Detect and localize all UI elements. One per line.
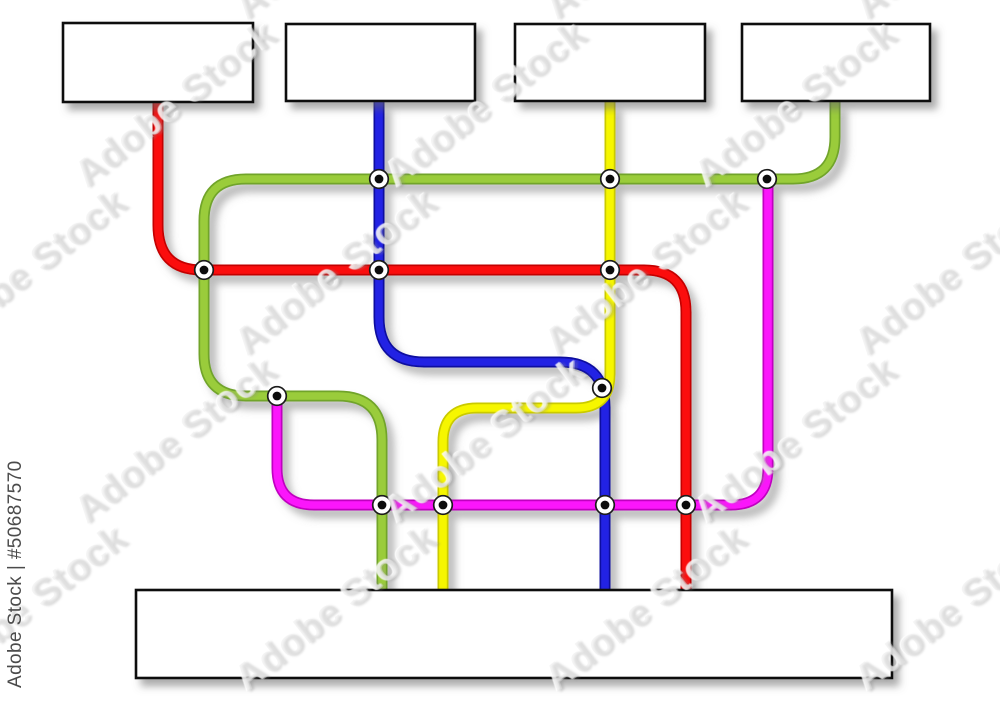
top-box-1 [63, 23, 253, 102]
bottom-box [136, 590, 892, 678]
station-marker [370, 261, 389, 280]
station-marker [373, 496, 392, 515]
top-box-3 [515, 24, 705, 101]
station-marker [434, 496, 453, 515]
station-marker [677, 496, 696, 515]
station-marker [601, 170, 620, 189]
watermark-attribution: Adobe Stock | #50687570 [5, 404, 27, 688]
boxes-layer [63, 23, 930, 678]
top-box-4 [742, 24, 930, 101]
station-marker [195, 261, 214, 280]
lines-layer [158, 102, 835, 590]
top-box-2 [286, 24, 475, 101]
station-marker [370, 170, 389, 189]
green-line [204, 102, 835, 590]
station-marker [268, 387, 287, 406]
station-marker [758, 170, 777, 189]
metro-flow-diagram [0, 0, 1000, 707]
station-marker [593, 379, 612, 398]
station-marker [601, 261, 620, 280]
stock-photo-canvas: Adobe StockAdobe StockAdobe StockAdobe S… [0, 0, 1000, 707]
station-marker [596, 496, 615, 515]
magenta-line [277, 179, 768, 505]
